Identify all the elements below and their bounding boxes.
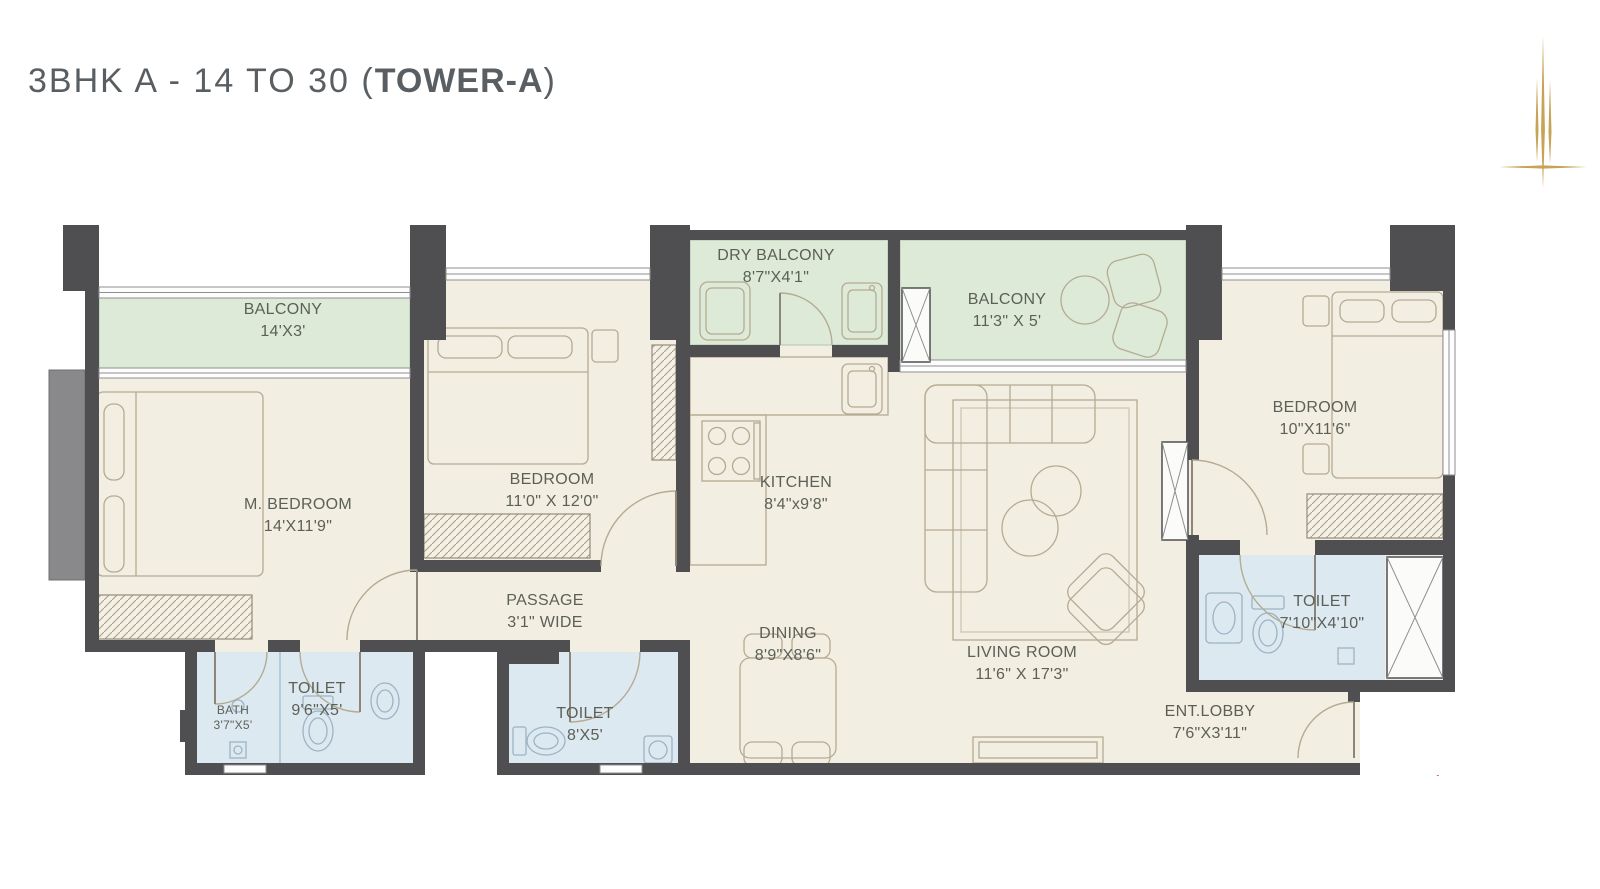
room-dims: 3'7"X5' (214, 718, 253, 733)
room-name: ENT.LOBBY (1165, 701, 1256, 723)
room-dims: 8'9"X8'6" (755, 645, 821, 667)
room-label-dry-balcony: DRY BALCONY 8'7"X4'1" (717, 245, 834, 289)
room-label-balcony-right: BALCONY 11'3" X 5' (968, 289, 1047, 333)
room-dims: 11'0" X 12'0" (505, 491, 598, 513)
room-dims: 10"X11'6" (1279, 419, 1350, 441)
room-dims: 14'X3' (260, 321, 305, 343)
room-label-passage: PASSAGE 3'1" WIDE (506, 590, 583, 634)
floor-plan (0, 0, 1600, 889)
room-label-kitchen: KITCHEN 8'4"x9'8" (760, 472, 832, 516)
room-name: BALCONY (244, 299, 323, 321)
room-label-m-bedroom: M. BEDROOM 14'X11'9" (244, 494, 352, 538)
room-label-ent-lobby: ENT.LOBBY 7'6"X3'11" (1165, 701, 1256, 745)
room-label-bath: BATH 3'7"X5' (214, 703, 253, 733)
room-name: TOILET (288, 678, 346, 700)
room-name: BEDROOM (1273, 397, 1358, 419)
floorplan-page: 3BHK A - 14 TO 30 (TOWER-A) (0, 0, 1600, 889)
room-name: TOILET (1293, 591, 1351, 613)
room-dims: 11'3" X 5' (973, 311, 1042, 333)
room-name: KITCHEN (760, 472, 832, 494)
room-dims: 7'10"X4'10" (1280, 613, 1365, 635)
room-name: TOILET (556, 703, 614, 725)
room-label-bedroom-3: BEDROOM 10"X11'6" (1273, 397, 1358, 441)
room-name: M. BEDROOM (244, 494, 352, 516)
room-dims: 8'4"x9'8" (764, 494, 828, 516)
room-dims: 8'7"X4'1" (743, 267, 809, 289)
room-dims: 7'6"X3'11" (1173, 723, 1247, 745)
left-column (49, 370, 85, 580)
room-label-toilet-right: TOILET 7'10"X4'10" (1280, 591, 1365, 635)
room-label-balcony-left: BALCONY 14'X3' (244, 299, 323, 343)
room-label-toilet-left: TOILET 9'6"X5' (288, 678, 346, 722)
room-dims: 14'X11'9" (264, 516, 332, 538)
room-label-living-room: LIVING ROOM 11'6" X 17'3" (967, 642, 1077, 686)
room-dims: 9'6"X5' (291, 700, 342, 722)
room-name: BATH (217, 703, 249, 718)
room-name: BALCONY (968, 289, 1047, 311)
room-name: DINING (759, 623, 817, 645)
room-name: BEDROOM (510, 469, 595, 491)
room-dims: 8'X5' (567, 725, 603, 747)
room-name: LIVING ROOM (967, 642, 1077, 664)
room-label-toilet-mid: TOILET 8'X5' (556, 703, 614, 747)
room-name: DRY BALCONY (717, 245, 834, 267)
room-label-dining: DINING 8'9"X8'6" (755, 623, 821, 667)
room-label-bedroom-2: BEDROOM 11'0" X 12'0" (505, 469, 598, 513)
room-dims: 11'6" X 17'3" (975, 664, 1068, 686)
room-dims: 3'1" WIDE (507, 612, 582, 634)
room-name: PASSAGE (506, 590, 583, 612)
